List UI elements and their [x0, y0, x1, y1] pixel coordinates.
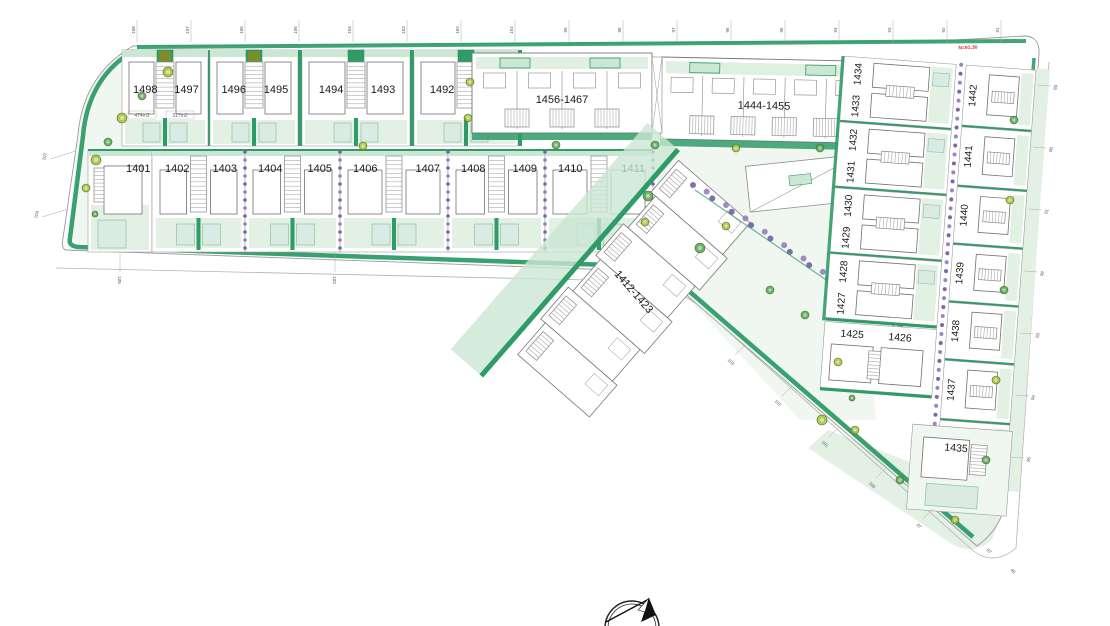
tree-icon	[641, 218, 649, 226]
tree-icon	[104, 138, 112, 146]
stair-hatch	[347, 62, 365, 108]
pool	[444, 123, 461, 142]
building	[879, 348, 924, 387]
stair-hatch	[550, 109, 574, 127]
plot-label-1428: 1428	[838, 260, 851, 283]
stair-hatch	[881, 151, 910, 164]
stair-hatch	[974, 326, 997, 339]
dimension-label: 107	[41, 152, 48, 161]
pool	[170, 123, 187, 142]
plot-label-1441: 1441	[963, 145, 976, 168]
tree-icon	[163, 67, 173, 77]
tree-icon	[896, 476, 904, 484]
dimension-label: 46	[1010, 567, 1017, 574]
building	[160, 170, 187, 214]
plot-cell-1438: 1438	[944, 302, 1018, 366]
pool	[925, 483, 978, 509]
pool	[297, 224, 315, 245]
tree-icon	[766, 286, 774, 294]
tree-icon	[1000, 286, 1008, 294]
tree-icon	[732, 144, 740, 152]
tree-icon	[849, 395, 855, 401]
plot-label-1410: 1410	[558, 163, 582, 175]
area-label: 317m2	[172, 113, 188, 119]
building	[305, 170, 333, 214]
plot-label-1497: 1497	[174, 84, 198, 96]
dimension-label: 95	[1025, 456, 1032, 463]
plot-cell-1442: 1442	[962, 65, 1036, 133]
dimension-label: 90	[1048, 146, 1055, 153]
dimension-label: 95	[779, 27, 784, 33]
unit-terrace	[712, 78, 734, 93]
stair-hatch	[970, 385, 993, 398]
plot-pair-1496-1495: 14961495	[210, 50, 302, 146]
dimension-label: 105	[117, 276, 122, 284]
plot-label-1492: 1492	[430, 84, 454, 96]
plot-label-1406: 1406	[353, 163, 377, 175]
pool	[928, 139, 945, 153]
area-label: 474m2	[134, 113, 150, 119]
dimension-label: 101	[509, 26, 514, 34]
stair-hatch	[992, 91, 1015, 104]
pool	[923, 204, 940, 218]
plot-label-1404: 1404	[258, 163, 282, 175]
pool	[259, 123, 276, 142]
tree-icon	[817, 415, 827, 425]
plot-label-1438: 1438	[950, 319, 963, 342]
stair-hatch	[690, 116, 714, 134]
dimension-label: 104	[347, 26, 352, 34]
dimension-label: 97	[986, 547, 993, 554]
plot-pair-1494-1493: 14941493	[302, 50, 414, 146]
dimension-label: 108	[131, 26, 136, 34]
plot-label-1408: 1408	[461, 163, 485, 175]
plot-cell-1437: 1437	[940, 360, 1014, 426]
stair-hatch	[772, 117, 796, 135]
pool	[232, 123, 249, 142]
pool	[361, 123, 378, 142]
pool	[334, 123, 351, 142]
tree-icon	[552, 141, 560, 149]
plot-label-1403: 1403	[213, 163, 237, 175]
plot-cell-1441: 1441	[957, 127, 1031, 193]
plot-label-1431: 1431	[845, 160, 858, 183]
tree-icon	[651, 141, 659, 149]
pool	[271, 224, 289, 245]
plot-label-1496: 1496	[222, 84, 246, 96]
block-label-1456-1467: 1456-1467	[536, 94, 589, 106]
stair-hatch	[245, 62, 263, 108]
stair-hatch	[813, 118, 837, 136]
plot-cell-1402-1403: 14021403	[152, 150, 245, 252]
roof-pool	[806, 65, 836, 76]
stair-hatch	[505, 109, 529, 127]
pool	[789, 174, 812, 186]
level-annotation: N=91.30	[958, 45, 977, 52]
dimension-label: 102	[774, 399, 783, 408]
dimension-label: 99	[563, 27, 568, 33]
pool	[918, 270, 935, 284]
plot-label-1429: 1429	[840, 226, 853, 249]
pool	[98, 220, 126, 248]
dimension-label: 96	[725, 27, 730, 33]
plot-label-1439: 1439	[954, 261, 967, 284]
plot-cell-1440: 1440	[953, 187, 1027, 251]
building	[509, 170, 538, 214]
planter	[348, 50, 364, 63]
dimension-label: 91	[1043, 208, 1050, 215]
stair-hatch	[489, 156, 505, 212]
dimension-label: 93	[1034, 332, 1041, 339]
unit-terrace	[574, 73, 596, 88]
plot-label-1437: 1437	[946, 378, 959, 401]
dimension-label: 104	[33, 210, 40, 219]
stair-hatch	[987, 152, 1010, 165]
unit-terrace	[484, 73, 506, 88]
dimension-label: 98	[617, 27, 622, 33]
tree-icon	[82, 184, 90, 192]
plot-label-1426: 1426	[888, 331, 912, 345]
dimension-label: 92	[1039, 270, 1046, 277]
plot-label-1442: 1442	[967, 84, 980, 107]
stair-hatch	[876, 217, 905, 230]
plot-pair-1434-1433: 14341433	[837, 56, 957, 131]
plot-label-1401: 1401	[126, 163, 150, 175]
plot-label-1493: 1493	[371, 84, 395, 96]
pool	[372, 224, 390, 245]
plot-label-1407: 1407	[416, 163, 440, 175]
plot-cell-1401: 1401	[88, 150, 152, 252]
dimension-label: 102	[455, 26, 460, 34]
site-plan-drawing: 14981497474m2317m21496149514941493149214…	[0, 0, 1110, 626]
plot-cell-1406-1407: 14061407	[340, 150, 448, 252]
stair-hatch	[595, 109, 619, 127]
stair-hatch	[191, 156, 207, 212]
tree-icon	[138, 92, 146, 100]
dimension-label: 103	[332, 276, 337, 284]
dimension-label: 91	[995, 27, 1000, 33]
plot-label-1430: 1430	[843, 194, 856, 217]
pool	[933, 73, 950, 87]
plot-pair-1498-1497: 14981497474m2317m2	[122, 50, 212, 146]
pool	[501, 224, 519, 245]
unit-terrace	[529, 73, 551, 88]
plot-label-1494: 1494	[319, 84, 343, 96]
block-label-1444-1455: 1444-1455	[738, 100, 791, 113]
plot-label-1433: 1433	[850, 94, 863, 117]
tree-icon	[695, 243, 705, 253]
unit-terrace	[671, 77, 693, 92]
tree-icon	[851, 426, 859, 434]
stair-hatch	[983, 211, 1006, 224]
planter-olive	[248, 51, 260, 62]
roof-pool	[590, 58, 620, 68]
dimension-label: 93	[887, 27, 892, 33]
tree-icon	[359, 142, 367, 150]
building	[211, 170, 238, 214]
pool	[475, 224, 493, 245]
stair-hatch	[731, 116, 755, 134]
stair-hatch	[867, 351, 881, 380]
north-arrow-icon	[605, 598, 659, 626]
hedge-divider	[298, 50, 302, 146]
plot-label-1405: 1405	[308, 163, 332, 175]
tree-icon	[117, 113, 127, 123]
dimension-label: 89	[1052, 84, 1059, 91]
plot-label-1435: 1435	[944, 442, 968, 456]
building	[456, 170, 485, 214]
building	[348, 170, 382, 214]
tree-icon	[643, 191, 653, 201]
plot-cell-1404-1405: 14041405	[245, 150, 340, 252]
dimension-label: 107	[185, 26, 190, 34]
plot-label-1434: 1434	[852, 62, 865, 85]
roof-pool	[690, 63, 720, 74]
tree-icon	[1010, 116, 1018, 124]
tree-icon	[801, 311, 809, 319]
dimension-label: 94	[1030, 394, 1037, 401]
plot-cell-1439: 1439	[949, 245, 1023, 309]
pool	[398, 224, 416, 245]
plot-pair-1432-1431: 14321431	[832, 122, 952, 197]
pool	[143, 123, 160, 142]
dimension-label: 103	[727, 358, 736, 367]
stair-hatch	[285, 156, 301, 212]
dimension-label: 105	[293, 26, 298, 34]
plot-label-1427: 1427	[836, 292, 849, 315]
plot-label-1425: 1425	[840, 328, 864, 342]
pool	[177, 224, 195, 245]
tree-icon	[816, 144, 824, 152]
dimension-label: 94	[833, 27, 838, 33]
building	[406, 170, 440, 214]
unit-terrace	[753, 79, 775, 94]
dimension-label: 97	[671, 27, 676, 33]
roof-pool	[500, 58, 530, 68]
tree-icon	[92, 211, 98, 217]
unit-terrace	[619, 73, 641, 88]
hedge-divider	[410, 50, 414, 146]
plot-label-1440: 1440	[958, 203, 971, 226]
plot-cell-1435: 1435	[906, 424, 1012, 516]
dimension-label: 92	[941, 27, 946, 33]
tree-icon	[1006, 196, 1014, 204]
plot-pair-1430-1429: 14301429	[827, 188, 947, 263]
service-structure	[652, 57, 662, 133]
plot-pair-1428-1427: 14281427	[822, 253, 942, 328]
building	[253, 170, 281, 214]
unit-terrace	[794, 80, 816, 95]
stair-hatch	[386, 156, 402, 212]
planter-olive	[159, 51, 171, 62]
tree-icon	[91, 155, 101, 165]
apartment-block-1456-1467: 1456-1467	[472, 53, 652, 140]
tree-icon	[982, 456, 990, 464]
stair-hatch	[886, 85, 915, 98]
stair-hatch	[94, 168, 104, 202]
plot-label-1409: 1409	[513, 163, 537, 175]
plot-label-1432: 1432	[848, 128, 861, 151]
dimension-label: 103	[401, 26, 406, 34]
pool	[203, 224, 221, 245]
plot-label-1495: 1495	[264, 84, 288, 96]
plot-label-1402: 1402	[165, 163, 189, 175]
dimension-label: 106	[239, 26, 244, 34]
verge-top	[137, 41, 1026, 47]
tree-icon	[951, 516, 959, 524]
hedge-band	[472, 133, 652, 140]
tree-icon	[992, 376, 1000, 384]
plot-cell-1408-1409: 14081409	[448, 150, 545, 252]
tree-icon	[464, 114, 472, 122]
tree-icon	[722, 222, 730, 230]
site-plan: 14981497474m2317m21496149514941493149214…	[0, 0, 1110, 626]
stair-hatch	[871, 283, 900, 296]
stair-hatch	[978, 269, 1001, 282]
tree-icon	[466, 78, 474, 86]
tree-icon	[834, 358, 842, 366]
